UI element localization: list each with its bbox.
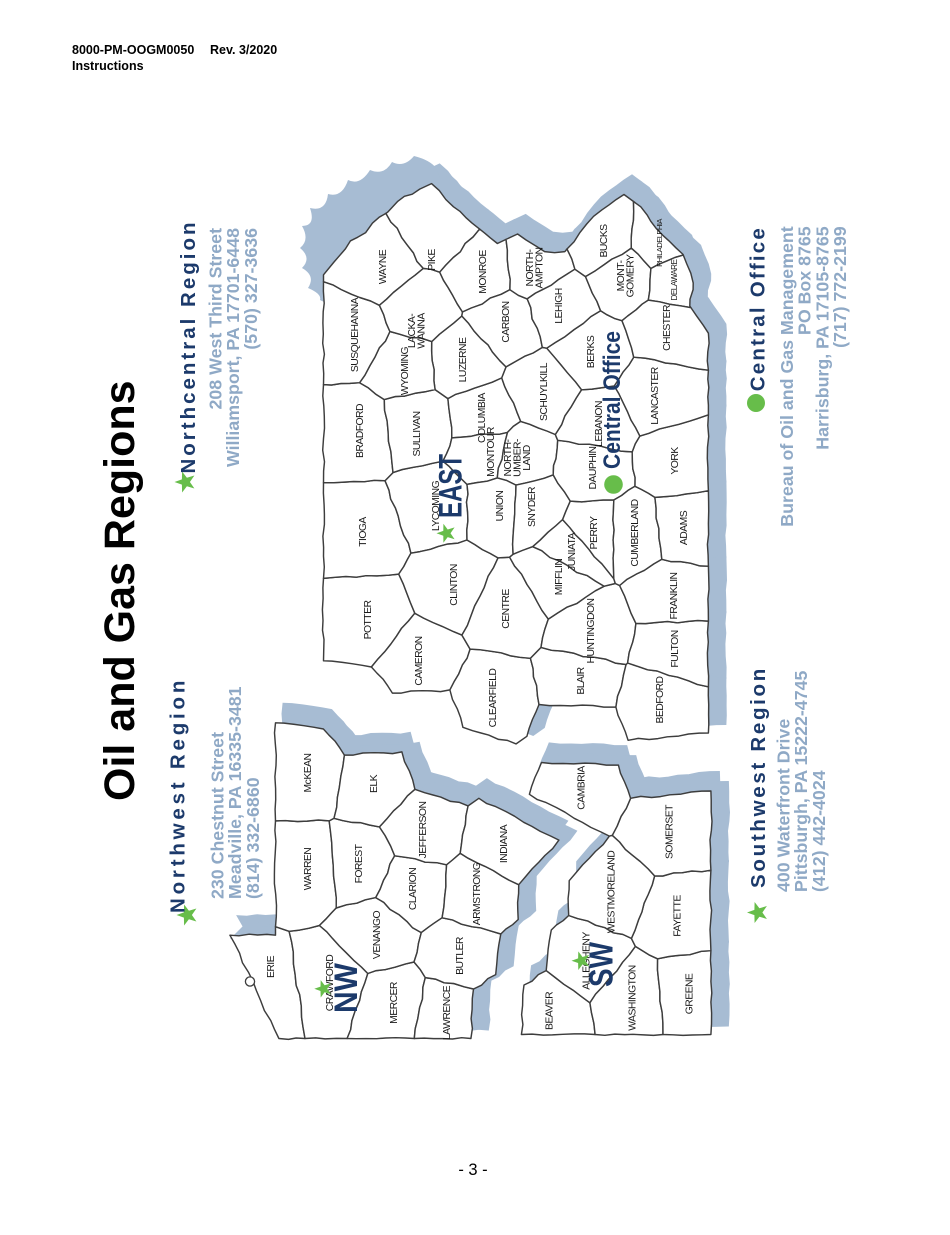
svg-text:SW: SW <box>583 941 620 987</box>
svg-text:WARREN: WARREN <box>303 848 314 891</box>
svg-text:WYOMING: WYOMING <box>400 346 411 395</box>
svg-text:SOMERSET: SOMERSET <box>665 804 676 859</box>
svg-text:MIFFLIN: MIFFLIN <box>554 559 565 596</box>
svg-text:HUNTINGDON: HUNTINGDON <box>586 598 597 663</box>
svg-text:LANCASTER: LANCASTER <box>650 366 661 424</box>
svg-text:UNION: UNION <box>495 491 506 522</box>
svg-text:(814) 332-6860: (814) 332-6860 <box>243 777 263 899</box>
svg-text:Southwest Region: Southwest Region <box>747 666 770 888</box>
svg-text:FOREST: FOREST <box>354 843 365 883</box>
svg-text:Northwest Region: Northwest Region <box>167 677 190 913</box>
svg-text:LUZERNE: LUZERNE <box>458 337 469 382</box>
svg-text:ADAMS: ADAMS <box>679 510 690 545</box>
svg-text:BEAVER: BEAVER <box>545 991 556 1030</box>
svg-text:LEHIGH: LEHIGH <box>554 288 565 323</box>
svg-text:DELAWARE: DELAWARE <box>670 258 679 300</box>
svg-text:MERCER: MERCER <box>389 981 400 1024</box>
svg-text:LAWRENCE: LAWRENCE <box>442 985 453 1040</box>
svg-text:(717) 772-2199: (717) 772-2199 <box>830 226 850 348</box>
svg-text:FRANKLIN: FRANKLIN <box>669 572 680 619</box>
svg-text:VENANGO: VENANGO <box>372 910 383 959</box>
svg-text:WESTMORELAND: WESTMORELAND <box>607 851 618 933</box>
svg-text:MONROE: MONROE <box>478 250 489 294</box>
svg-text:BUCKS: BUCKS <box>599 224 610 258</box>
svg-text:BERKS: BERKS <box>586 335 597 368</box>
svg-text:ELK: ELK <box>369 774 380 793</box>
svg-text:(412) 442-4024: (412) 442-4024 <box>809 770 829 892</box>
svg-text:BLAIR: BLAIR <box>576 666 587 694</box>
svg-text:ARMSTRONG: ARMSTRONG <box>472 862 483 925</box>
svg-text:8000-PM-OOGM0050: 8000-PM-OOGM0050 <box>72 43 194 57</box>
svg-text:LACKA-WANNA: LACKA-WANNA <box>407 313 428 349</box>
svg-text:GREENE: GREENE <box>685 973 696 1014</box>
svg-text:Instructions: Instructions <box>72 59 144 73</box>
svg-text:Central Office: Central Office <box>747 226 770 391</box>
svg-text:Oil and Gas Regions: Oil and Gas Regions <box>96 380 144 801</box>
svg-text:Northcentral Region: Northcentral Region <box>177 220 200 474</box>
svg-text:BEDFORD: BEDFORD <box>655 676 666 723</box>
svg-text:CAMERON: CAMERON <box>414 636 425 685</box>
svg-text:CLEARFIELD: CLEARFIELD <box>488 669 499 728</box>
svg-text:Central Office: Central Office <box>599 331 626 469</box>
svg-text:Rev. 3/2020: Rev. 3/2020 <box>210 43 277 57</box>
svg-text:EAST: EAST <box>433 454 469 518</box>
svg-text:- 3 -: - 3 - <box>458 1161 487 1179</box>
svg-text:JUNIATA: JUNIATA <box>567 532 578 571</box>
svg-text:TIOGA: TIOGA <box>358 517 369 547</box>
svg-text:McKEAN: McKEAN <box>303 754 314 793</box>
svg-text:ERIE: ERIE <box>266 955 277 978</box>
svg-text:CAMBRIA: CAMBRIA <box>577 766 588 810</box>
svg-text:PIKE: PIKE <box>427 249 438 271</box>
svg-text:NW: NW <box>328 962 364 1013</box>
svg-text:FULTON: FULTON <box>670 630 681 667</box>
svg-text:SNYDER: SNYDER <box>527 486 538 527</box>
svg-text:CLINTON: CLINTON <box>449 564 460 606</box>
svg-text:WASHINGTON: WASHINGTON <box>628 965 639 1031</box>
svg-text:SUSQUEHANNA: SUSQUEHANNA <box>350 297 361 372</box>
svg-text:NORTH-AMPTON: NORTH-AMPTON <box>525 247 546 288</box>
svg-text:CUMBERLAND: CUMBERLAND <box>630 499 641 566</box>
svg-text:INDIANA: INDIANA <box>499 824 510 863</box>
svg-text:SULLIVAN: SULLIVAN <box>412 411 423 456</box>
svg-text:MONTOUR: MONTOUR <box>486 426 497 477</box>
svg-text:DAUPHIN: DAUPHIN <box>588 447 599 490</box>
svg-text:PHILADELPHIA: PHILADELPHIA <box>655 218 664 267</box>
svg-text:POTTER: POTTER <box>363 600 374 640</box>
svg-text:(570) 327-3636: (570) 327-3636 <box>241 228 261 350</box>
svg-text:WAYNE: WAYNE <box>378 249 389 284</box>
svg-text:PERRY: PERRY <box>589 516 600 549</box>
svg-text:CLARION: CLARION <box>408 868 419 910</box>
svg-text:BRADFORD: BRADFORD <box>355 404 366 458</box>
svg-text:SCHUYLKILL: SCHUYLKILL <box>539 362 550 421</box>
svg-text:JEFFERSON: JEFFERSON <box>418 802 429 859</box>
svg-text:YORK: YORK <box>670 447 681 475</box>
svg-text:CENTRE: CENTRE <box>501 589 512 629</box>
svg-text:CHESTER: CHESTER <box>662 304 673 351</box>
svg-text:BUTLER: BUTLER <box>455 936 466 975</box>
svg-text:CARBON: CARBON <box>501 301 512 342</box>
svg-text:FAYETTE: FAYETTE <box>673 895 684 937</box>
